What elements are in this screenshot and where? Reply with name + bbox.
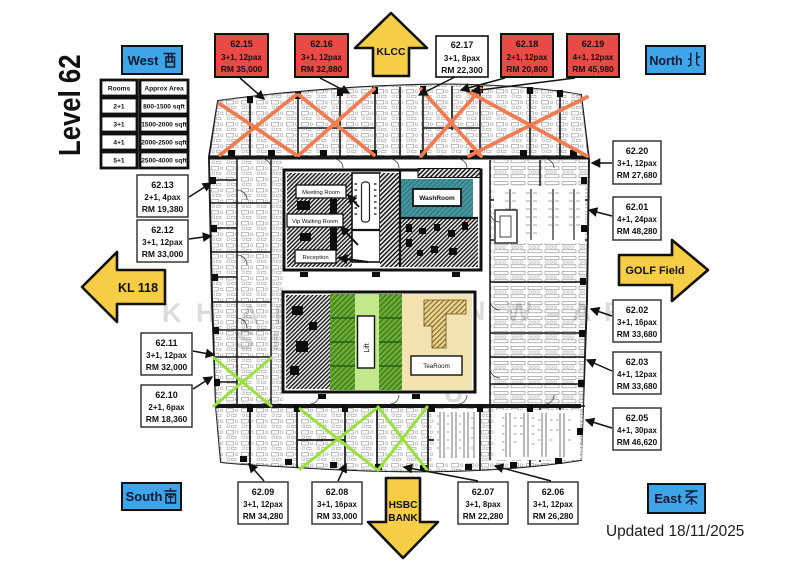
svg-text:4+1, 12pax: 4+1, 12pax bbox=[617, 370, 657, 379]
svg-text:RM 48,280: RM 48,280 bbox=[617, 226, 658, 236]
svg-text:3+1, 12pax: 3+1, 12pax bbox=[243, 500, 283, 509]
svg-text:62.08: 62.08 bbox=[326, 487, 349, 497]
svg-text:62.11: 62.11 bbox=[155, 338, 177, 348]
svg-text:Reception: Reception bbox=[302, 255, 328, 261]
svg-text:3+1, 8pax: 3+1, 8pax bbox=[444, 54, 481, 63]
svg-text:I: I bbox=[272, 326, 280, 356]
svg-text:RM 22,280: RM 22,280 bbox=[463, 511, 504, 521]
svg-text:3+1, 12pax: 3+1, 12pax bbox=[301, 53, 342, 62]
svg-text:RM 46,620: RM 46,620 bbox=[617, 437, 658, 447]
svg-text:2+1: 2+1 bbox=[113, 104, 125, 111]
svg-text:Meeting Room: Meeting Room bbox=[302, 190, 340, 196]
svg-text:62.18: 62.18 bbox=[516, 39, 539, 49]
svg-text:4+1, 12pax: 4+1, 12pax bbox=[573, 53, 614, 62]
svg-text:2+1, 12pax: 2+1, 12pax bbox=[507, 53, 548, 62]
svg-text:W: W bbox=[506, 297, 532, 327]
svg-text:RM 20,800: RM 20,800 bbox=[506, 64, 548, 74]
svg-text:RM 18,360: RM 18,360 bbox=[146, 414, 188, 424]
svg-text:62.09: 62.09 bbox=[252, 487, 275, 497]
svg-text:TeaRoom: TeaRoom bbox=[423, 363, 449, 370]
svg-text:2500-4000 sqft: 2500-4000 sqft bbox=[141, 158, 187, 165]
svg-text:North: North bbox=[649, 54, 682, 68]
svg-text:RM 19,380: RM 19,380 bbox=[142, 204, 184, 214]
svg-text:KL 118: KL 118 bbox=[118, 281, 158, 295]
svg-text:62.15: 62.15 bbox=[230, 39, 253, 49]
svg-text:800-1500 sqft: 800-1500 sqft bbox=[143, 104, 186, 111]
svg-text:Level 62: Level 62 bbox=[53, 55, 88, 156]
svg-text:5+1: 5+1 bbox=[113, 158, 125, 165]
svg-text:62.07: 62.07 bbox=[472, 487, 495, 497]
svg-text:62.01: 62.01 bbox=[626, 202, 649, 212]
svg-text:West: West bbox=[128, 53, 159, 68]
svg-text:RM 32,000: RM 32,000 bbox=[146, 362, 188, 372]
svg-text:Updated 18/11/2025: Updated 18/11/2025 bbox=[606, 523, 744, 540]
svg-text:62.05: 62.05 bbox=[626, 413, 649, 423]
svg-text:3+1, 16pax: 3+1, 16pax bbox=[617, 318, 657, 327]
svg-text:RM 33,680: RM 33,680 bbox=[617, 381, 658, 391]
svg-text:RM 33,000: RM 33,000 bbox=[142, 249, 184, 259]
svg-text:RM 33,680: RM 33,680 bbox=[617, 329, 658, 339]
svg-text:62.06: 62.06 bbox=[542, 487, 565, 497]
svg-text:3+1, 12pax: 3+1, 12pax bbox=[533, 500, 573, 509]
svg-text:RM 34,280: RM 34,280 bbox=[243, 511, 284, 521]
svg-text:4+1, 24pax: 4+1, 24pax bbox=[617, 215, 657, 224]
svg-text:–: – bbox=[546, 298, 561, 328]
svg-text:62.16: 62.16 bbox=[310, 39, 333, 49]
svg-text:3+1, 12pax: 3+1, 12pax bbox=[142, 238, 183, 247]
svg-text:BANK: BANK bbox=[388, 513, 418, 524]
svg-text:RM 22,300: RM 22,300 bbox=[441, 65, 483, 75]
svg-text:3+1, 8pax: 3+1, 8pax bbox=[465, 500, 501, 509]
svg-text:2000-2500 sqft: 2000-2500 sqft bbox=[141, 140, 187, 147]
svg-text:A: A bbox=[572, 297, 592, 327]
svg-text:62.20: 62.20 bbox=[626, 146, 649, 156]
svg-text:Rooms: Rooms bbox=[108, 86, 131, 93]
svg-text:4+1: 4+1 bbox=[113, 140, 125, 147]
svg-text:3+1: 3+1 bbox=[113, 122, 125, 129]
svg-text:3+1, 12pax: 3+1, 12pax bbox=[221, 53, 262, 62]
svg-text:Lift: Lift bbox=[364, 343, 371, 352]
svg-text:South: South bbox=[126, 489, 163, 504]
svg-text:62.10: 62.10 bbox=[155, 390, 178, 400]
svg-text:RM 35,000: RM 35,000 bbox=[221, 64, 263, 74]
svg-text:62.12: 62.12 bbox=[151, 225, 174, 235]
svg-text:2+1, 4pax: 2+1, 4pax bbox=[144, 193, 181, 202]
svg-text:RM 26,280: RM 26,280 bbox=[533, 511, 574, 521]
svg-text:East: East bbox=[654, 491, 682, 506]
svg-text:RM 45,980: RM 45,980 bbox=[572, 64, 614, 74]
svg-text:62.19: 62.19 bbox=[582, 39, 605, 49]
svg-text:62.03: 62.03 bbox=[626, 357, 649, 367]
svg-text:Vip Waiting Room: Vip Waiting Room bbox=[292, 219, 338, 225]
svg-text:3+1, 12pax: 3+1, 12pax bbox=[146, 351, 187, 360]
svg-text:Approx Area: Approx Area bbox=[144, 86, 184, 93]
svg-text:62.02: 62.02 bbox=[626, 305, 649, 315]
svg-text:4+1, 30pax: 4+1, 30pax bbox=[617, 426, 657, 435]
svg-text:RM 33,000: RM 33,000 bbox=[317, 511, 358, 521]
svg-text:62.17: 62.17 bbox=[451, 40, 474, 50]
svg-text:WashRoom: WashRoom bbox=[419, 195, 455, 202]
svg-text:1500-2000 sqft: 1500-2000 sqft bbox=[141, 122, 187, 129]
svg-text:RM 32,880: RM 32,880 bbox=[301, 64, 343, 74]
svg-text:3+1, 16pax: 3+1, 16pax bbox=[317, 500, 357, 509]
svg-text:RM 27,680: RM 27,680 bbox=[617, 170, 658, 180]
svg-text:GOLF Field: GOLF Field bbox=[625, 265, 684, 277]
svg-text:62.13: 62.13 bbox=[151, 180, 174, 190]
svg-text:HSBC: HSBC bbox=[389, 500, 419, 511]
svg-text:KLCC: KLCC bbox=[376, 46, 406, 58]
svg-text:3+1, 12pax: 3+1, 12pax bbox=[617, 159, 657, 168]
svg-text:2+1, 6pax: 2+1, 6pax bbox=[148, 403, 185, 412]
